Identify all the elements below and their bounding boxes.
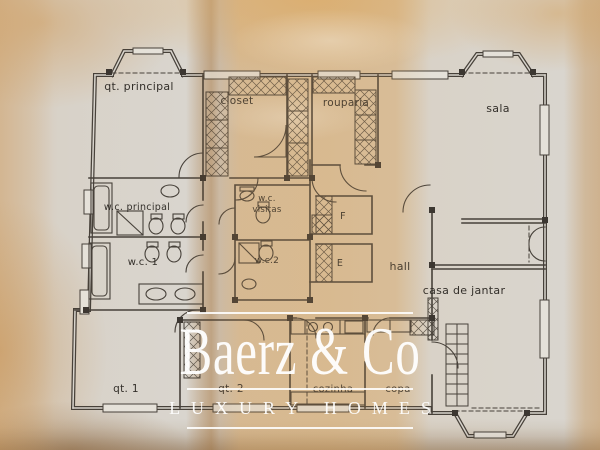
label-wc-principal: w.c. principal	[104, 202, 170, 213]
label-rouparia: rouparia	[323, 97, 369, 109]
label-wc-visitas-1: w.c.	[258, 194, 275, 204]
label-hall: hall	[389, 260, 410, 273]
watermark-divider-middle	[187, 388, 413, 390]
watermark-brand: Baerz & Co	[84, 317, 516, 385]
label-lift-f: F	[340, 211, 346, 222]
label-casa-de-jantar: casa de jantar	[423, 284, 506, 297]
watermark-divider-bottom	[187, 427, 413, 429]
watermark-tagline: LUXURY HOMES	[0, 398, 600, 420]
label-wc-visitas-2: visitas	[252, 205, 282, 215]
label-qt-principal: qt. principal	[104, 80, 174, 93]
floorplan-photo: qt. principal closet rouparia sala w.c. …	[0, 0, 600, 450]
closet-corner-shelf	[254, 125, 286, 157]
label-lift-e: E	[337, 258, 343, 269]
label-closet: closet	[221, 95, 254, 107]
label-sala: sala	[486, 102, 509, 115]
label-wc-2: w.c.2	[255, 256, 279, 266]
label-wc-1: w.c. 1	[128, 257, 158, 268]
